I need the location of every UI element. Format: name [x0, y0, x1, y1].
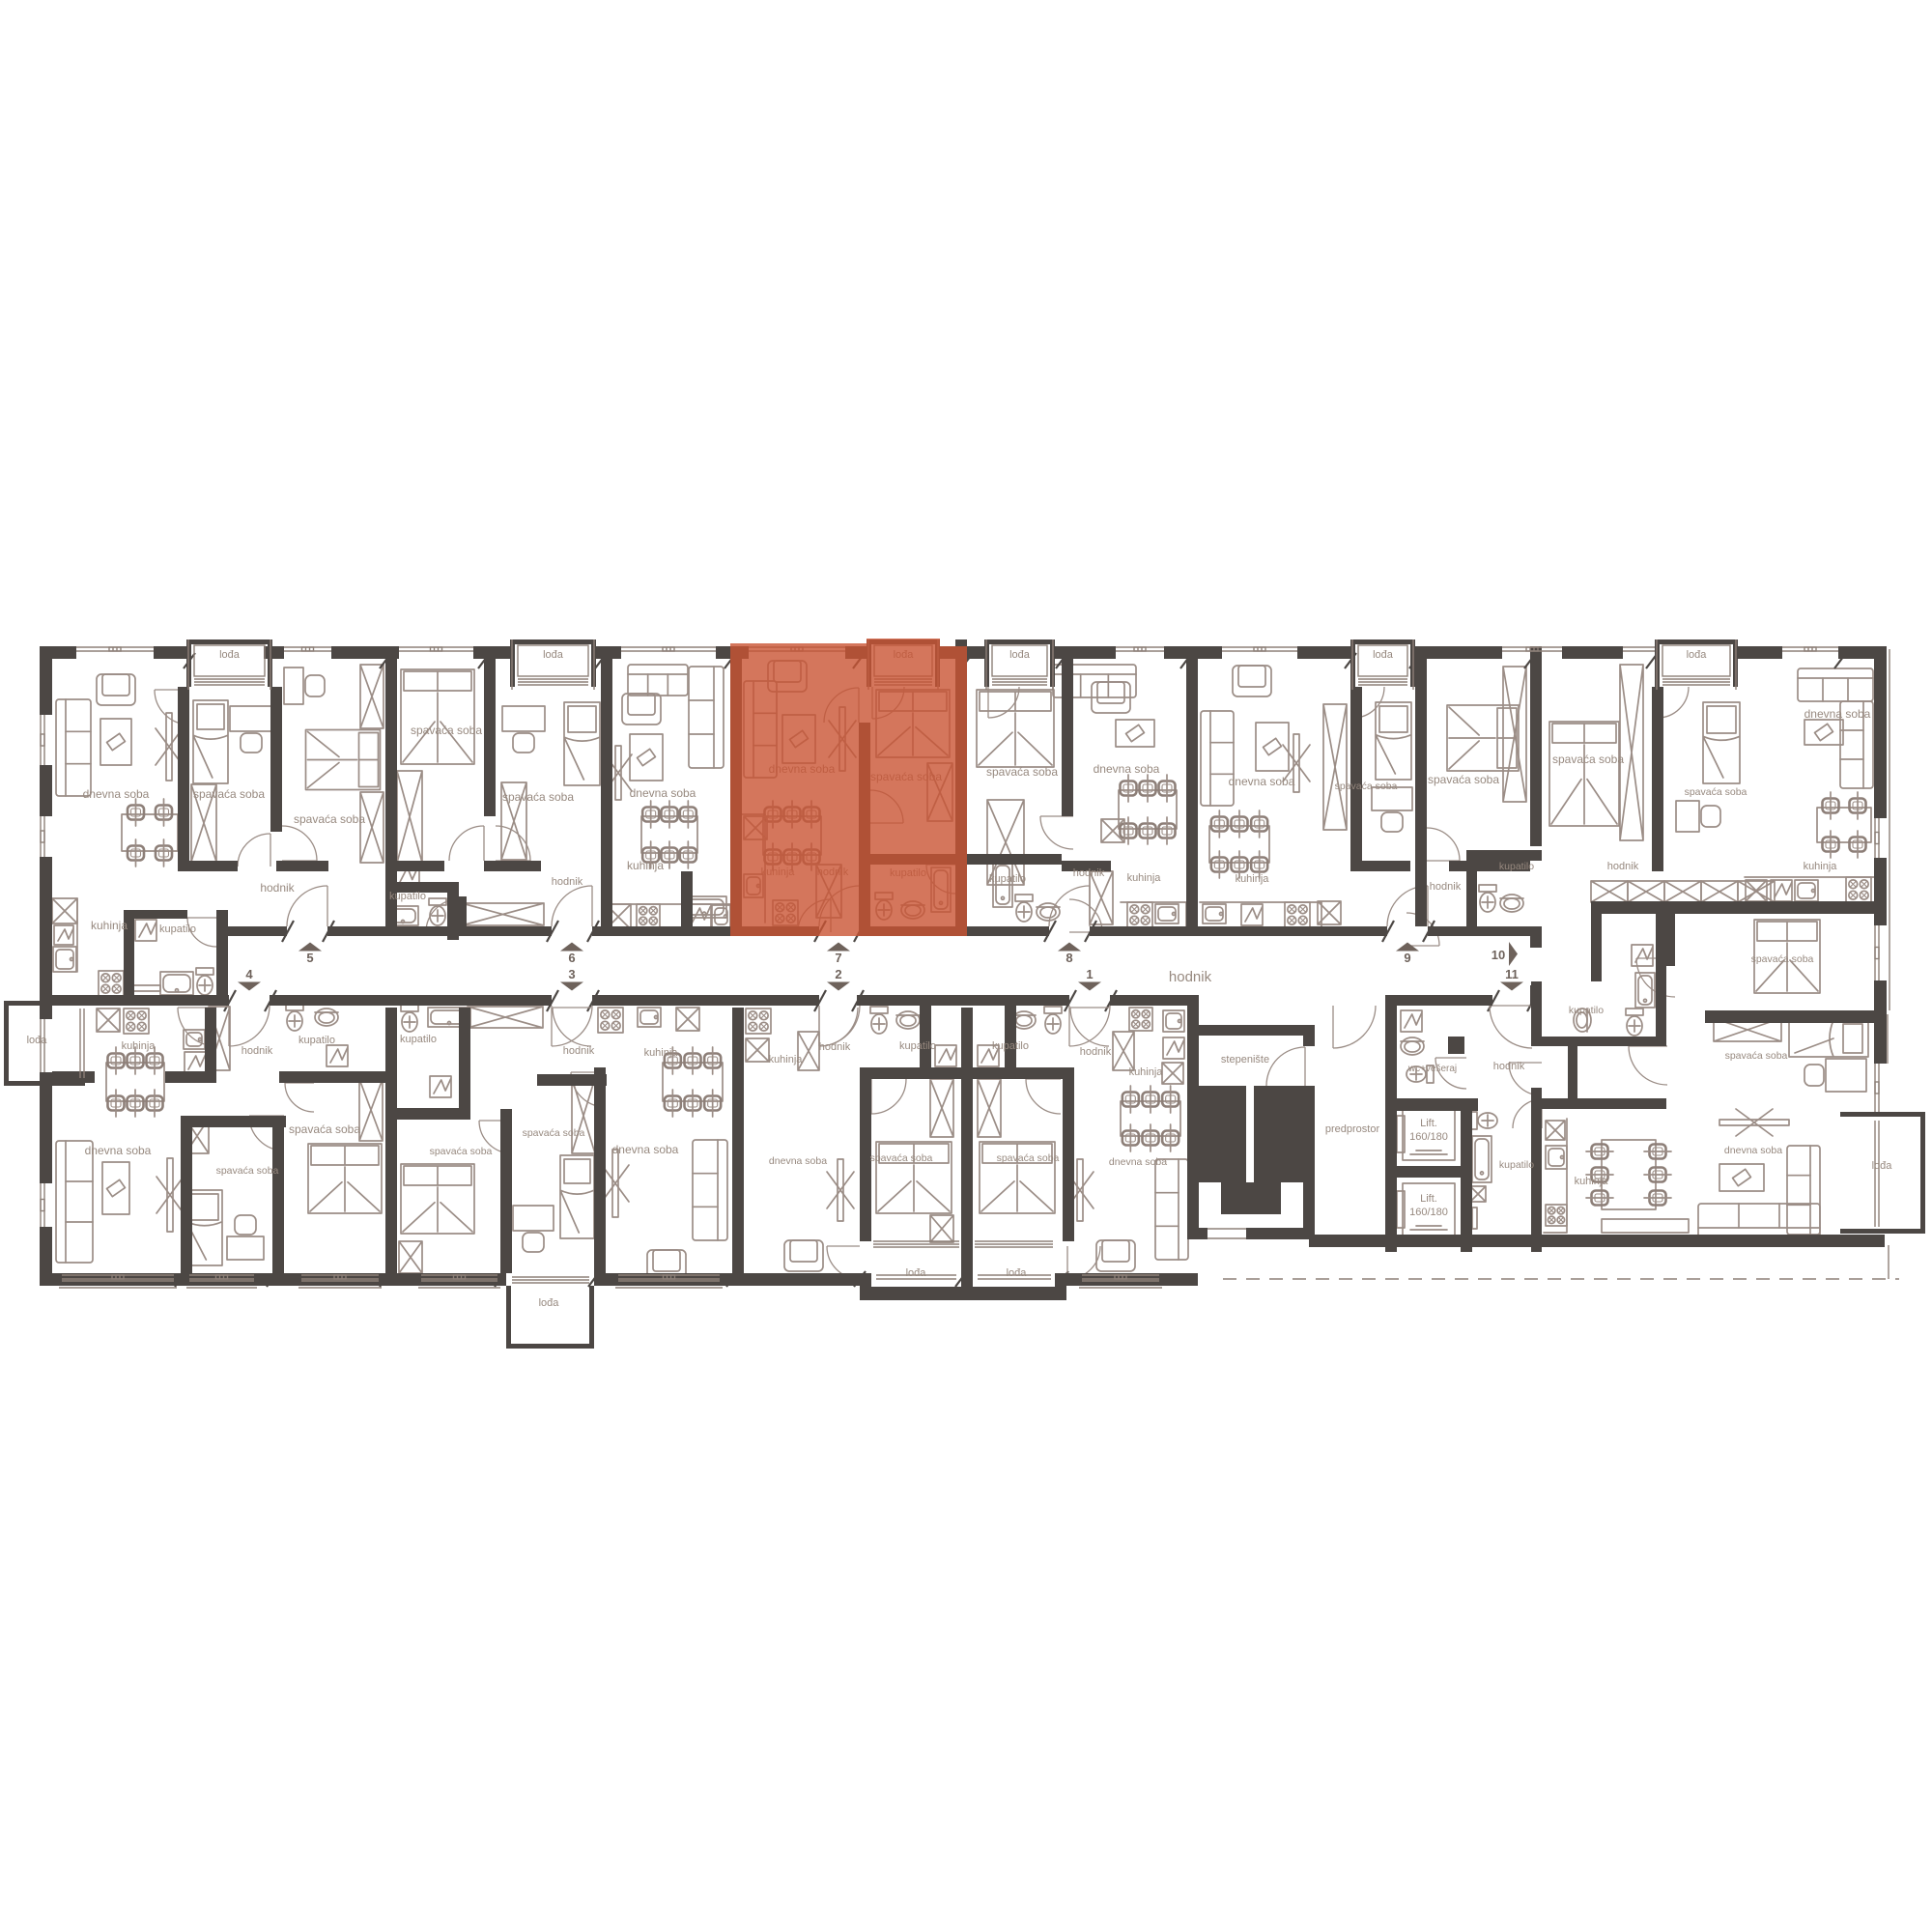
svg-text:wc+vešeraj: wc+vešeraj — [1407, 1064, 1457, 1074]
svg-text:4: 4 — [245, 967, 253, 981]
svg-text:kuhinja: kuhinja — [1129, 1066, 1164, 1078]
svg-text:dnevna soba: dnevna soba — [1724, 1145, 1782, 1156]
svg-text:kupatilo: kupatilo — [899, 1040, 936, 1052]
svg-text:7: 7 — [835, 951, 841, 965]
svg-text:lođa: lođa — [543, 649, 564, 661]
svg-text:kupatilo: kupatilo — [159, 923, 196, 935]
svg-text:kupatilo: kupatilo — [389, 891, 426, 902]
svg-text:hodnik: hodnik — [1430, 881, 1462, 893]
svg-text:160/180: 160/180 — [1409, 1131, 1448, 1143]
svg-text:predprostor: predprostor — [1325, 1123, 1380, 1135]
svg-text:dnevna soba: dnevna soba — [769, 1155, 827, 1167]
svg-text:spavaća soba: spavaća soba — [986, 765, 1058, 779]
svg-text:hodnik: hodnik — [260, 881, 295, 895]
svg-text:spavaća soba: spavaća soba — [997, 1152, 1060, 1164]
svg-text:dnevna soba: dnevna soba — [1094, 762, 1160, 776]
svg-text:spavaća soba: spavaća soba — [1751, 953, 1814, 965]
svg-text:6: 6 — [568, 951, 575, 965]
svg-text:dnevna soba: dnevna soba — [630, 786, 696, 800]
svg-text:kupatilo: kupatilo — [989, 873, 1026, 885]
svg-text:stepenište: stepenište — [1221, 1054, 1269, 1065]
svg-text:160/180: 160/180 — [1409, 1207, 1448, 1218]
svg-text:Lift.: Lift. — [1420, 1193, 1437, 1205]
svg-text:kupatilo: kupatilo — [1499, 1159, 1534, 1171]
svg-text:spavaća soba: spavaća soba — [1725, 1050, 1788, 1062]
svg-text:hodnik: hodnik — [552, 876, 583, 888]
svg-text:spavaća soba: spavaća soba — [870, 1152, 933, 1164]
svg-text:lođa: lođa — [1373, 649, 1394, 661]
svg-text:hodnik: hodnik — [241, 1045, 273, 1057]
svg-text:spavaća soba: spavaća soba — [1685, 786, 1747, 798]
svg-text:dnevna soba: dnevna soba — [1804, 707, 1871, 721]
svg-text:lođa: lođa — [27, 1035, 48, 1046]
svg-text:hodnik: hodnik — [1493, 1061, 1525, 1072]
svg-text:hodnik: hodnik — [1080, 1046, 1112, 1058]
svg-text:kuhinja: kuhinja — [1804, 861, 1838, 872]
svg-text:spavaća soba: spavaća soba — [1428, 773, 1499, 786]
svg-text:lođa: lođa — [219, 649, 241, 661]
svg-text:kupatilo: kupatilo — [400, 1034, 437, 1045]
svg-text:spavaća soba: spavaća soba — [523, 1127, 585, 1139]
svg-text:dnevna soba: dnevna soba — [1229, 775, 1295, 788]
svg-text:spavaća soba: spavaća soba — [294, 812, 365, 826]
svg-text:5: 5 — [306, 951, 313, 965]
svg-text:lođa: lođa — [1009, 649, 1031, 661]
svg-text:kuhinja: kuhinja — [122, 1040, 156, 1052]
svg-text:kuhinja: kuhinja — [91, 919, 128, 932]
svg-text:spavaća soba: spavaća soba — [289, 1122, 360, 1136]
svg-text:lođa: lođa — [539, 1297, 560, 1309]
svg-text:hodnik: hodnik — [1073, 867, 1105, 879]
svg-text:lođa: lođa — [1687, 649, 1708, 661]
svg-text:spavaća soba: spavaća soba — [430, 1146, 493, 1157]
svg-text:Lift.: Lift. — [1420, 1118, 1437, 1129]
svg-text:9: 9 — [1404, 951, 1410, 965]
svg-text:kuhinja: kuhinja — [1575, 1176, 1609, 1187]
svg-text:dnevna soba: dnevna soba — [1109, 1156, 1167, 1168]
svg-text:spavaća soba: spavaća soba — [1335, 781, 1398, 792]
svg-text:hodnik: hodnik — [1169, 969, 1212, 985]
svg-text:kuhinja: kuhinja — [644, 1047, 679, 1059]
svg-text:kuhinja: kuhinja — [769, 1054, 804, 1065]
svg-text:kuhinja: kuhinja — [627, 859, 664, 872]
svg-text:kupatilo: kupatilo — [1499, 861, 1534, 872]
svg-text:spavaća soba: spavaća soba — [216, 1165, 279, 1177]
svg-text:hodnik: hodnik — [563, 1045, 595, 1057]
svg-text:kupatilo: kupatilo — [1569, 1005, 1604, 1016]
svg-text:spavaća soba: spavaća soba — [502, 790, 574, 804]
svg-text:3: 3 — [568, 967, 575, 981]
svg-text:1: 1 — [1086, 967, 1093, 981]
svg-text:spavaća soba: spavaća soba — [411, 724, 482, 737]
svg-text:lođa: lođa — [1007, 1267, 1028, 1279]
svg-text:8: 8 — [1065, 951, 1072, 965]
svg-text:10: 10 — [1492, 948, 1505, 962]
svg-text:hodnik: hodnik — [819, 1041, 851, 1053]
svg-text:kupatilo: kupatilo — [992, 1040, 1029, 1052]
svg-text:dnevna soba: dnevna soba — [85, 1144, 152, 1157]
svg-text:dnevna soba: dnevna soba — [612, 1143, 679, 1156]
svg-text:lođa: lođa — [906, 1267, 927, 1279]
svg-text:kuhinja: kuhinja — [1236, 873, 1270, 885]
svg-text:dnevna soba: dnevna soba — [83, 787, 150, 801]
svg-text:2: 2 — [835, 967, 841, 981]
svg-text:lođa: lođa — [1872, 1160, 1893, 1172]
svg-text:spavaća soba: spavaća soba — [1552, 753, 1624, 766]
svg-text:spavaća soba: spavaća soba — [193, 787, 265, 801]
svg-text:hodnik: hodnik — [1607, 861, 1639, 872]
svg-text:kupatilo: kupatilo — [298, 1035, 335, 1046]
svg-text:kuhinja: kuhinja — [1127, 872, 1162, 884]
svg-text:11: 11 — [1505, 967, 1519, 981]
